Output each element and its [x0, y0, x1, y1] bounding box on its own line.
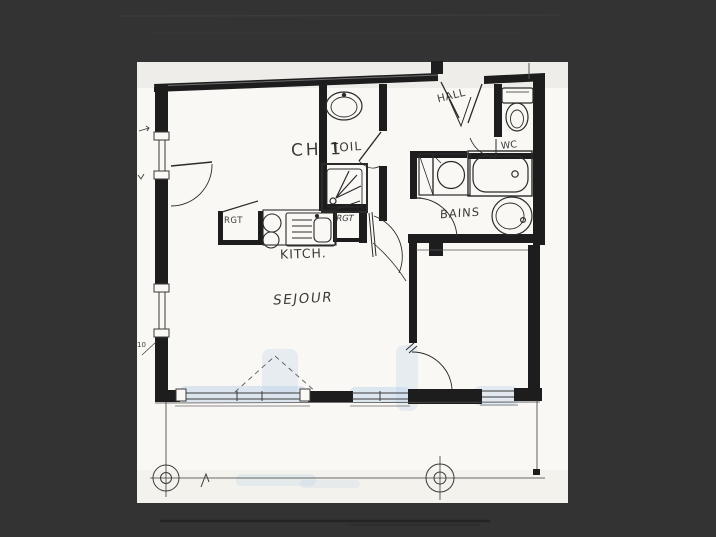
floor-plan-drawing [0, 0, 716, 537]
dimension-note: 10 [137, 341, 146, 349]
paper-sheet [137, 62, 568, 503]
room-label-wc: WC [500, 139, 517, 152]
closet-label-rgt-left: RGT [224, 216, 243, 226]
closet-label-rgt-right: RGT [335, 214, 355, 224]
room-label-kitchen: KITCH. [280, 245, 327, 262]
room-label-bains: BAINS [440, 205, 480, 222]
room-label-toil: TOIL [331, 139, 363, 155]
room-label-sejour: SEJOUR [272, 289, 334, 308]
screenshot-stage: CH 1 TOIL HALL WC BAINS RGT RGT KITCH. S… [0, 0, 716, 537]
